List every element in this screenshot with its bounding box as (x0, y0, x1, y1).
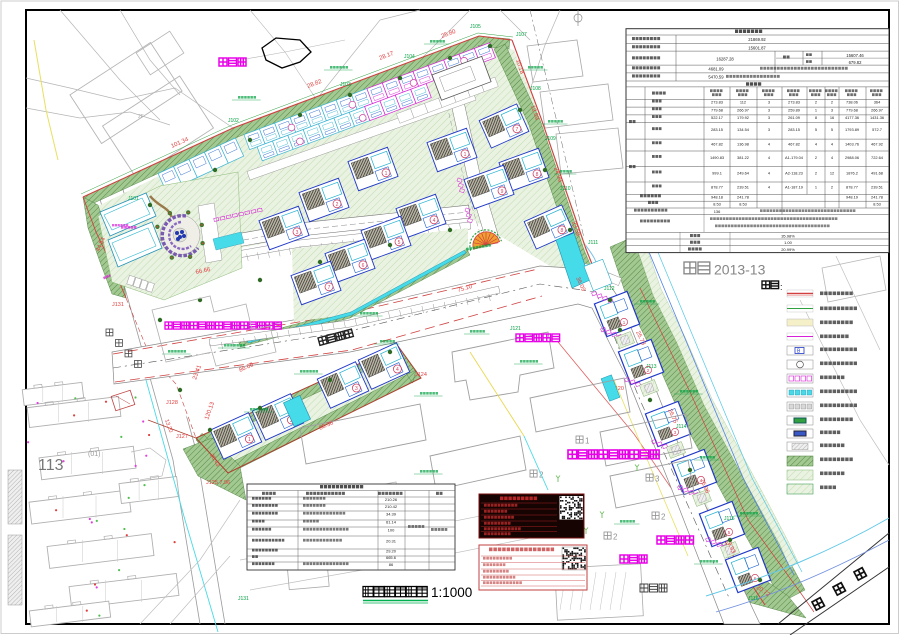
svg-text:779.68: 779.68 (711, 107, 723, 112)
svg-text:4: 4 (433, 218, 436, 224)
svg-text:1: 1 (585, 437, 590, 446)
svg-text:722.64: 722.64 (871, 155, 884, 160)
svg-text:2: 2 (815, 171, 817, 176)
svg-text:3: 3 (355, 386, 358, 392)
svg-text:364: 364 (874, 100, 881, 105)
svg-text:1:1000: 1:1000 (431, 585, 472, 600)
svg-text:1: 1 (815, 107, 817, 112)
svg-text:J112: J112 (604, 286, 615, 292)
svg-text:2: 2 (831, 100, 833, 105)
svg-text:J105: J105 (470, 24, 481, 30)
svg-text:1.00: 1.00 (784, 240, 793, 245)
svg-text:210.42: 210.42 (385, 504, 398, 509)
svg-text:467.92: 467.92 (871, 141, 883, 146)
svg-text:2013-13: 2013-13 (714, 262, 766, 278)
svg-text:J113: J113 (646, 364, 657, 370)
svg-text:136: 136 (714, 209, 721, 214)
svg-text:21869.92: 21869.92 (748, 37, 766, 42)
svg-text:J111: J111 (588, 240, 598, 246)
svg-text:3: 3 (768, 100, 770, 105)
svg-text:A1-179.04: A1-179.04 (785, 155, 804, 160)
svg-text:259.89: 259.89 (788, 107, 800, 112)
svg-text:20.31: 20.31 (386, 539, 397, 544)
svg-text:3: 3 (768, 115, 770, 120)
svg-text:738.06: 738.06 (846, 100, 858, 105)
svg-text:J104: J104 (404, 54, 415, 60)
svg-text:999.1: 999.1 (712, 171, 722, 176)
svg-text:266.97: 266.97 (737, 107, 749, 112)
svg-text:86: 86 (389, 562, 394, 567)
svg-text:948.19: 948.19 (846, 195, 858, 200)
svg-text:3: 3 (655, 475, 660, 484)
svg-text:1: 1 (464, 152, 467, 158)
svg-text:15601.87: 15601.87 (748, 45, 766, 50)
svg-text:J116: J116 (748, 596, 759, 602)
svg-text:5: 5 (398, 240, 401, 246)
svg-text:266.97: 266.97 (871, 107, 883, 112)
svg-text:1793.89: 1793.89 (845, 127, 859, 132)
svg-text:12: 12 (830, 171, 834, 176)
svg-text:4177.36: 4177.36 (845, 115, 859, 120)
svg-text:2F: 2F (138, 114, 144, 120)
svg-text:J114: J114 (676, 424, 687, 430)
svg-text:J109: J109 (545, 136, 556, 142)
svg-text:20.99%: 20.99% (781, 247, 795, 252)
svg-text:467.82: 467.82 (711, 141, 723, 146)
svg-text:2: 2 (815, 155, 817, 160)
svg-text:239.51: 239.51 (871, 185, 883, 190)
svg-text:J124: J124 (415, 372, 427, 378)
svg-text:8.53: 8.53 (739, 201, 747, 206)
svg-text:J127: J127 (176, 434, 188, 440)
svg-text:3: 3 (768, 107, 770, 112)
svg-text:779.68: 779.68 (846, 107, 858, 112)
svg-text:283.15: 283.15 (788, 127, 800, 132)
svg-text:1490.83: 1490.83 (710, 155, 724, 160)
svg-text:J128: J128 (166, 400, 178, 406)
svg-text:16: 16 (830, 115, 834, 120)
svg-text:5470.59: 5470.59 (708, 75, 724, 80)
svg-text:16287.28: 16287.28 (716, 57, 734, 62)
svg-text:9: 9 (501, 189, 504, 195)
svg-text:J131: J131 (238, 596, 249, 602)
svg-text:J121: J121 (510, 326, 521, 332)
svg-text:1: 1 (248, 437, 251, 443)
svg-text:381.22: 381.22 (737, 155, 749, 160)
svg-text:878.77: 878.77 (846, 185, 858, 190)
svg-text:241.78: 241.78 (871, 195, 883, 200)
svg-text:2: 2 (613, 533, 618, 542)
svg-text:8.53: 8.53 (713, 201, 721, 206)
svg-text:4681.09: 4681.09 (708, 67, 724, 72)
svg-text:1431.36: 1431.36 (870, 115, 884, 120)
svg-text:5: 5 (831, 127, 833, 132)
svg-text:(01): (01) (88, 451, 100, 458)
svg-text:522.17: 522.17 (711, 115, 723, 120)
svg-text:273.83: 273.83 (788, 100, 800, 105)
svg-text:1: 1 (385, 171, 388, 177)
svg-text:3: 3 (768, 127, 770, 132)
svg-text:J125 7.96: J125 7.96 (206, 480, 230, 486)
svg-text:7: 7 (516, 127, 519, 133)
svg-text:A2-118.23: A2-118.23 (785, 171, 803, 176)
svg-text:8: 8 (561, 228, 564, 234)
svg-text:134.54: 134.54 (737, 127, 750, 132)
svg-text:2: 2 (815, 100, 817, 105)
svg-text:5: 5 (815, 127, 817, 132)
svg-text:283.15: 283.15 (711, 127, 723, 132)
svg-text:2: 2 (831, 185, 833, 190)
svg-text:J103: J103 (340, 82, 351, 88)
svg-text:29.20: 29.20 (386, 549, 397, 554)
svg-text:2988.06: 2988.06 (845, 155, 859, 160)
svg-text:136.98: 136.98 (737, 141, 749, 146)
svg-text:679.82: 679.82 (849, 60, 862, 65)
svg-text:6: 6 (362, 263, 365, 269)
svg-text:210.26: 210.26 (385, 497, 398, 502)
svg-text:261.09: 261.09 (788, 115, 800, 120)
svg-text:948.18: 948.18 (711, 195, 723, 200)
svg-text:J101: J101 (128, 196, 139, 202)
svg-text:15607.46: 15607.46 (846, 53, 864, 58)
svg-text:100: 100 (388, 528, 395, 533)
svg-text:2: 2 (336, 202, 339, 208)
svg-text:1403.76: 1403.76 (845, 141, 859, 146)
svg-text:3: 3 (296, 230, 299, 236)
svg-text:J102: J102 (228, 118, 239, 124)
svg-text:249.64: 249.64 (737, 171, 750, 176)
svg-text:239.51: 239.51 (737, 185, 749, 190)
svg-text:878.77: 878.77 (711, 185, 723, 190)
svg-text:34.39: 34.39 (386, 512, 397, 517)
svg-text:J110: J110 (560, 186, 571, 192)
svg-text:1876.2: 1876.2 (846, 171, 858, 176)
svg-text::: : (780, 282, 783, 292)
svg-text:572.7: 572.7 (872, 127, 882, 132)
svg-text:3: 3 (831, 107, 833, 112)
svg-text:8: 8 (815, 115, 817, 120)
svg-text:J107: J107 (516, 32, 527, 38)
svg-text:J108: J108 (530, 86, 541, 92)
svg-text:467.82: 467.82 (788, 141, 800, 146)
svg-text:2: 2 (661, 513, 666, 522)
svg-text:112: 112 (740, 100, 746, 105)
svg-text:241.78: 241.78 (737, 195, 749, 200)
svg-text:J131: J131 (112, 302, 124, 308)
svg-text:7: 7 (328, 285, 331, 291)
svg-text:61.14: 61.14 (386, 520, 397, 525)
svg-text:J115: J115 (724, 516, 735, 522)
svg-text:35.98%: 35.98% (781, 233, 795, 238)
svg-text:A1-187.19: A1-187.19 (785, 185, 803, 190)
svg-text:665.6: 665.6 (386, 555, 397, 560)
svg-text:179.92: 179.92 (737, 115, 749, 120)
svg-text:8.53: 8.53 (873, 201, 881, 206)
svg-text:8: 8 (536, 172, 539, 178)
svg-text:273.83: 273.83 (711, 100, 723, 105)
svg-text:113: 113 (38, 457, 64, 474)
svg-text:4: 4 (396, 367, 399, 373)
svg-text:491.68: 491.68 (871, 171, 883, 176)
svg-text:1: 1 (815, 185, 817, 190)
